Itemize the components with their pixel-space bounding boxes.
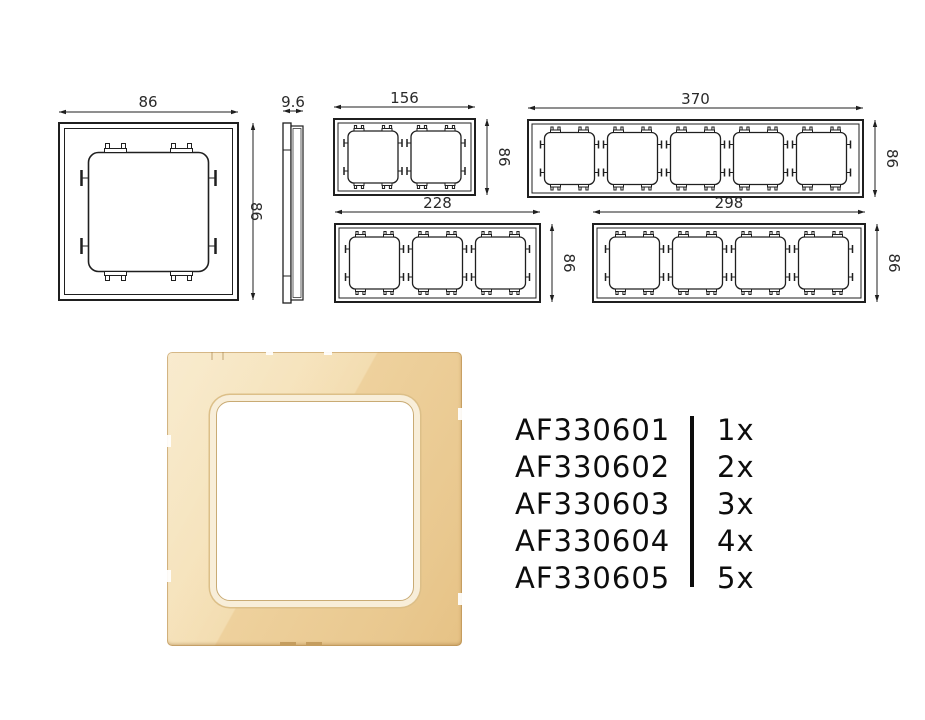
gang-opening <box>350 237 400 289</box>
gang-clip-tooth <box>768 127 770 130</box>
gang-clip-tooth <box>558 127 560 130</box>
gang-clip-tooth <box>768 187 770 190</box>
dimension-label: 370 <box>681 90 710 108</box>
gang-clip-tooth <box>649 187 651 190</box>
gang-opening <box>89 153 209 272</box>
gang-clip-tooth <box>642 127 644 130</box>
gang-clip-tooth <box>840 232 842 235</box>
gang-clip-tooth <box>356 232 358 235</box>
gang-clip-tooth <box>424 126 426 129</box>
gang-clip-tooth <box>382 126 384 129</box>
dimension-label: 86 <box>883 149 901 168</box>
gang-clip-tooth <box>188 276 192 281</box>
gang-clip-tooth <box>677 187 679 190</box>
drawing-2gang-front-view: 15686 <box>334 89 513 195</box>
product-code-row: AF330603 3x <box>515 485 755 522</box>
product-code-quantity: 5x <box>717 561 755 595</box>
gang-clip-tooth <box>391 292 393 295</box>
gang-clip-tooth <box>749 292 751 295</box>
dimension-arrow <box>550 224 554 231</box>
gang-clip-tooth <box>838 127 840 130</box>
gang-clip-tooth <box>742 292 744 295</box>
gang-clip-tooth <box>812 232 814 235</box>
gang-clip-tooth <box>447 292 449 295</box>
gang-clip-tooth <box>747 187 749 190</box>
gang-clip-tooth <box>426 232 428 235</box>
dimension-arrow <box>593 210 600 214</box>
gang-clip-tooth <box>686 292 688 295</box>
gang-clip-tooth <box>644 232 646 235</box>
codes-divider-line <box>690 416 694 587</box>
gang-opening <box>413 237 463 289</box>
top-seam-mark <box>211 352 213 360</box>
gang-clip-tooth <box>614 127 616 130</box>
dimension-label: 86 <box>560 253 578 272</box>
dimension-arrow <box>485 188 489 195</box>
gang-clip-tooth <box>419 292 421 295</box>
gang-clip-tooth <box>707 292 709 295</box>
gang-clip-tooth <box>649 127 651 130</box>
gang-opening <box>411 131 461 183</box>
gang-clip-tooth <box>510 232 512 235</box>
dimension-arrow <box>251 123 255 130</box>
gang-clip-tooth <box>805 232 807 235</box>
gang-clip-tooth <box>188 144 192 149</box>
right-edge-notch <box>458 593 463 605</box>
gang-clip-tooth <box>777 232 779 235</box>
gang-clip-tooth <box>684 127 686 130</box>
dimension-arrow <box>875 224 879 231</box>
gang-clip-tooth <box>684 187 686 190</box>
gang-clip-tooth <box>651 292 653 295</box>
product-code: AF330605 <box>515 561 717 595</box>
gang-clip-tooth <box>833 232 835 235</box>
dimension-label: 86 <box>247 202 265 221</box>
gang-clip-tooth <box>454 232 456 235</box>
gang-opening <box>545 133 595 185</box>
gang-clip-tooth <box>679 232 681 235</box>
gang-clip-tooth <box>447 232 449 235</box>
dimension-arrow <box>875 295 879 302</box>
product-code: AF330603 <box>515 487 717 521</box>
gang-clip-tooth <box>712 187 714 190</box>
gang-clip-tooth <box>838 187 840 190</box>
gang-clip-tooth <box>810 127 812 130</box>
gang-clip-tooth <box>417 186 419 189</box>
dimension-label: 86 <box>138 93 157 111</box>
top-edge-notch <box>266 351 273 355</box>
dimension-arrow <box>533 210 540 214</box>
gang-clip-tooth <box>623 292 625 295</box>
gang-clip-tooth <box>714 292 716 295</box>
dimension-arrow <box>873 120 877 127</box>
dimension-arrow <box>468 105 475 109</box>
gang-clip-tooth <box>384 292 386 295</box>
gang-clip-tooth <box>445 186 447 189</box>
gang-clip-tooth <box>106 276 110 281</box>
dimension-arrow <box>334 105 341 109</box>
gang-clip-tooth <box>172 144 176 149</box>
gang-clip-tooth <box>614 187 616 190</box>
gang-clip-tooth <box>621 187 623 190</box>
gang-clip-tooth <box>831 127 833 130</box>
gang-clip-tooth <box>384 232 386 235</box>
gang-clip-tooth <box>579 127 581 130</box>
gang-clip-tooth <box>417 126 419 129</box>
gang-opening <box>476 237 526 289</box>
gang-clip-tooth <box>122 144 126 149</box>
gang-clip-tooth <box>551 187 553 190</box>
gang-clip-tooth <box>770 292 772 295</box>
drawing-side-profile-view: 9.6 <box>281 93 305 303</box>
gang-clip-tooth <box>354 126 356 129</box>
gang-clip-tooth <box>356 292 358 295</box>
gang-clip-tooth <box>586 127 588 130</box>
gang-clip-tooth <box>489 292 491 295</box>
product-code-row: AF330604 4x <box>515 522 755 559</box>
bottom-claw <box>280 642 296 646</box>
dimension-arrow <box>856 106 863 110</box>
dimension-arrow <box>59 110 66 114</box>
product-code-quantity: 4x <box>717 524 755 558</box>
gang-clip-tooth <box>122 276 126 281</box>
gang-clip-tooth <box>452 186 454 189</box>
dimension-arrow <box>335 210 342 214</box>
gang-clip-tooth <box>621 127 623 130</box>
product-sheet-page: 86869.615686370862288629886 AF330601 1x … <box>0 0 925 720</box>
gang-clip-tooth <box>712 127 714 130</box>
gang-opening <box>671 133 721 185</box>
product-code: AF330604 <box>515 524 717 558</box>
gang-clip-tooth <box>705 127 707 130</box>
gang-clip-tooth <box>616 292 618 295</box>
gang-clip-tooth <box>775 127 777 130</box>
gang-clip-tooth <box>424 186 426 189</box>
gang-clip-tooth <box>705 187 707 190</box>
gang-clip-tooth <box>679 292 681 295</box>
dimension-arrow <box>251 293 255 300</box>
gang-clip-tooth <box>747 127 749 130</box>
gang-clip <box>171 272 193 276</box>
gang-clip-tooth <box>812 292 814 295</box>
gang-clip-tooth <box>454 292 456 295</box>
dimension-arrow <box>485 119 489 126</box>
gang-clip-tooth <box>642 187 644 190</box>
gang-clip-tooth <box>616 232 618 235</box>
dimension-arrow <box>231 110 238 114</box>
gang-clip-tooth <box>361 186 363 189</box>
gang-clip-tooth <box>803 127 805 130</box>
product-codes-list: AF330601 1x AF330602 2x AF330603 3x AF33… <box>515 411 755 596</box>
gang-clip-tooth <box>489 232 491 235</box>
gang-clip-tooth <box>686 232 688 235</box>
top-edge-notch <box>324 351 332 355</box>
gang-clip-tooth <box>775 187 777 190</box>
gang-opening <box>799 237 849 289</box>
gang-clip-tooth <box>803 187 805 190</box>
product-code-row: AF330605 5x <box>515 559 755 596</box>
gang-clip-tooth <box>651 232 653 235</box>
gang-clip-tooth <box>482 292 484 295</box>
gang-clip <box>105 272 127 276</box>
gang-clip-tooth <box>740 127 742 130</box>
left-edge-notch <box>166 435 171 447</box>
gang-clip-tooth <box>517 232 519 235</box>
gang-clip-tooth <box>586 187 588 190</box>
dimension-arrow <box>528 106 535 110</box>
gang-clip-tooth <box>740 187 742 190</box>
gang-clip-tooth <box>551 127 553 130</box>
left-edge-notch <box>166 570 171 582</box>
gang-clip <box>171 149 193 153</box>
gang-clip-tooth <box>714 232 716 235</box>
gang-opening <box>348 131 398 183</box>
gang-clip-tooth <box>452 126 454 129</box>
gang-clip-tooth <box>742 232 744 235</box>
product-code-row: AF330601 1x <box>515 411 755 448</box>
dimension-label: 228 <box>423 194 452 212</box>
gang-clip-tooth <box>172 276 176 281</box>
gang-clip-tooth <box>106 144 110 149</box>
gang-opening <box>673 237 723 289</box>
dimension-arrow <box>550 295 554 302</box>
gang-opening <box>736 237 786 289</box>
dimension-label: 86 <box>885 253 903 272</box>
gang-clip-tooth <box>833 292 835 295</box>
dimension-arrow <box>873 190 877 197</box>
gang-clip-tooth <box>623 232 625 235</box>
drawing-1gang-front-view: 8686 <box>59 93 265 300</box>
dimension-label: 86 <box>495 147 513 166</box>
gang-clip-tooth <box>382 186 384 189</box>
gang-clip-tooth <box>426 292 428 295</box>
gang-clip-tooth <box>749 232 751 235</box>
gang-clip-tooth <box>363 232 365 235</box>
technical-drawings-canvas: 86869.615686370862288629886 <box>0 0 925 720</box>
drawing-5gang-front-view: 37086 <box>528 90 901 197</box>
gang-clip-tooth <box>644 292 646 295</box>
gang-clip-tooth <box>419 232 421 235</box>
gang-clip-tooth <box>558 187 560 190</box>
gang-clip-tooth <box>517 292 519 295</box>
gang-opening <box>797 133 847 185</box>
right-edge-notch <box>458 408 463 420</box>
gang-clip-tooth <box>482 232 484 235</box>
dimension-label: 156 <box>390 89 419 107</box>
product-code: AF330602 <box>515 450 717 484</box>
dimension-arrow <box>858 210 865 214</box>
bottom-claw <box>306 642 322 646</box>
product-code-row: AF330602 2x <box>515 448 755 485</box>
gang-clip-tooth <box>831 187 833 190</box>
drawing-3gang-front-view: 22886 <box>335 194 578 302</box>
product-code-quantity: 3x <box>717 487 755 521</box>
gang-opening <box>610 237 660 289</box>
gang-clip-tooth <box>840 292 842 295</box>
top-seam-mark <box>222 352 224 360</box>
product-photo-opening <box>216 401 414 601</box>
gang-clip-tooth <box>579 187 581 190</box>
gang-clip-tooth <box>391 232 393 235</box>
gang-clip-tooth <box>354 186 356 189</box>
drawing-4gang-front-view: 29886 <box>593 194 903 302</box>
gang-clip-tooth <box>707 232 709 235</box>
product-code-quantity: 1x <box>717 413 755 447</box>
dimension-label: 9.6 <box>281 93 305 111</box>
gang-clip-tooth <box>777 292 779 295</box>
gang-clip-tooth <box>389 186 391 189</box>
product-photo <box>167 352 462 646</box>
gang-clip-tooth <box>389 126 391 129</box>
product-code: AF330601 <box>515 413 717 447</box>
gang-clip-tooth <box>361 126 363 129</box>
gang-clip-tooth <box>363 292 365 295</box>
gang-opening <box>734 133 784 185</box>
dimension-label: 298 <box>715 194 744 212</box>
gang-clip-tooth <box>445 126 447 129</box>
gang-clip-tooth <box>810 187 812 190</box>
product-code-quantity: 2x <box>717 450 755 484</box>
gang-opening <box>608 133 658 185</box>
gang-clip-tooth <box>510 292 512 295</box>
gang-clip <box>105 149 127 153</box>
gang-clip-tooth <box>677 127 679 130</box>
gang-clip-tooth <box>805 292 807 295</box>
gang-clip-tooth <box>770 232 772 235</box>
